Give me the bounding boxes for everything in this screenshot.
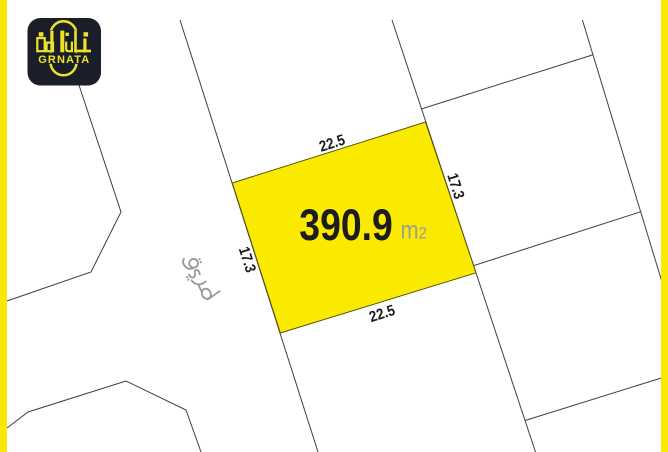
svg-text:390.9: 390.9 xyxy=(299,200,393,250)
svg-text:GRNATA: GRNATA xyxy=(38,54,90,66)
